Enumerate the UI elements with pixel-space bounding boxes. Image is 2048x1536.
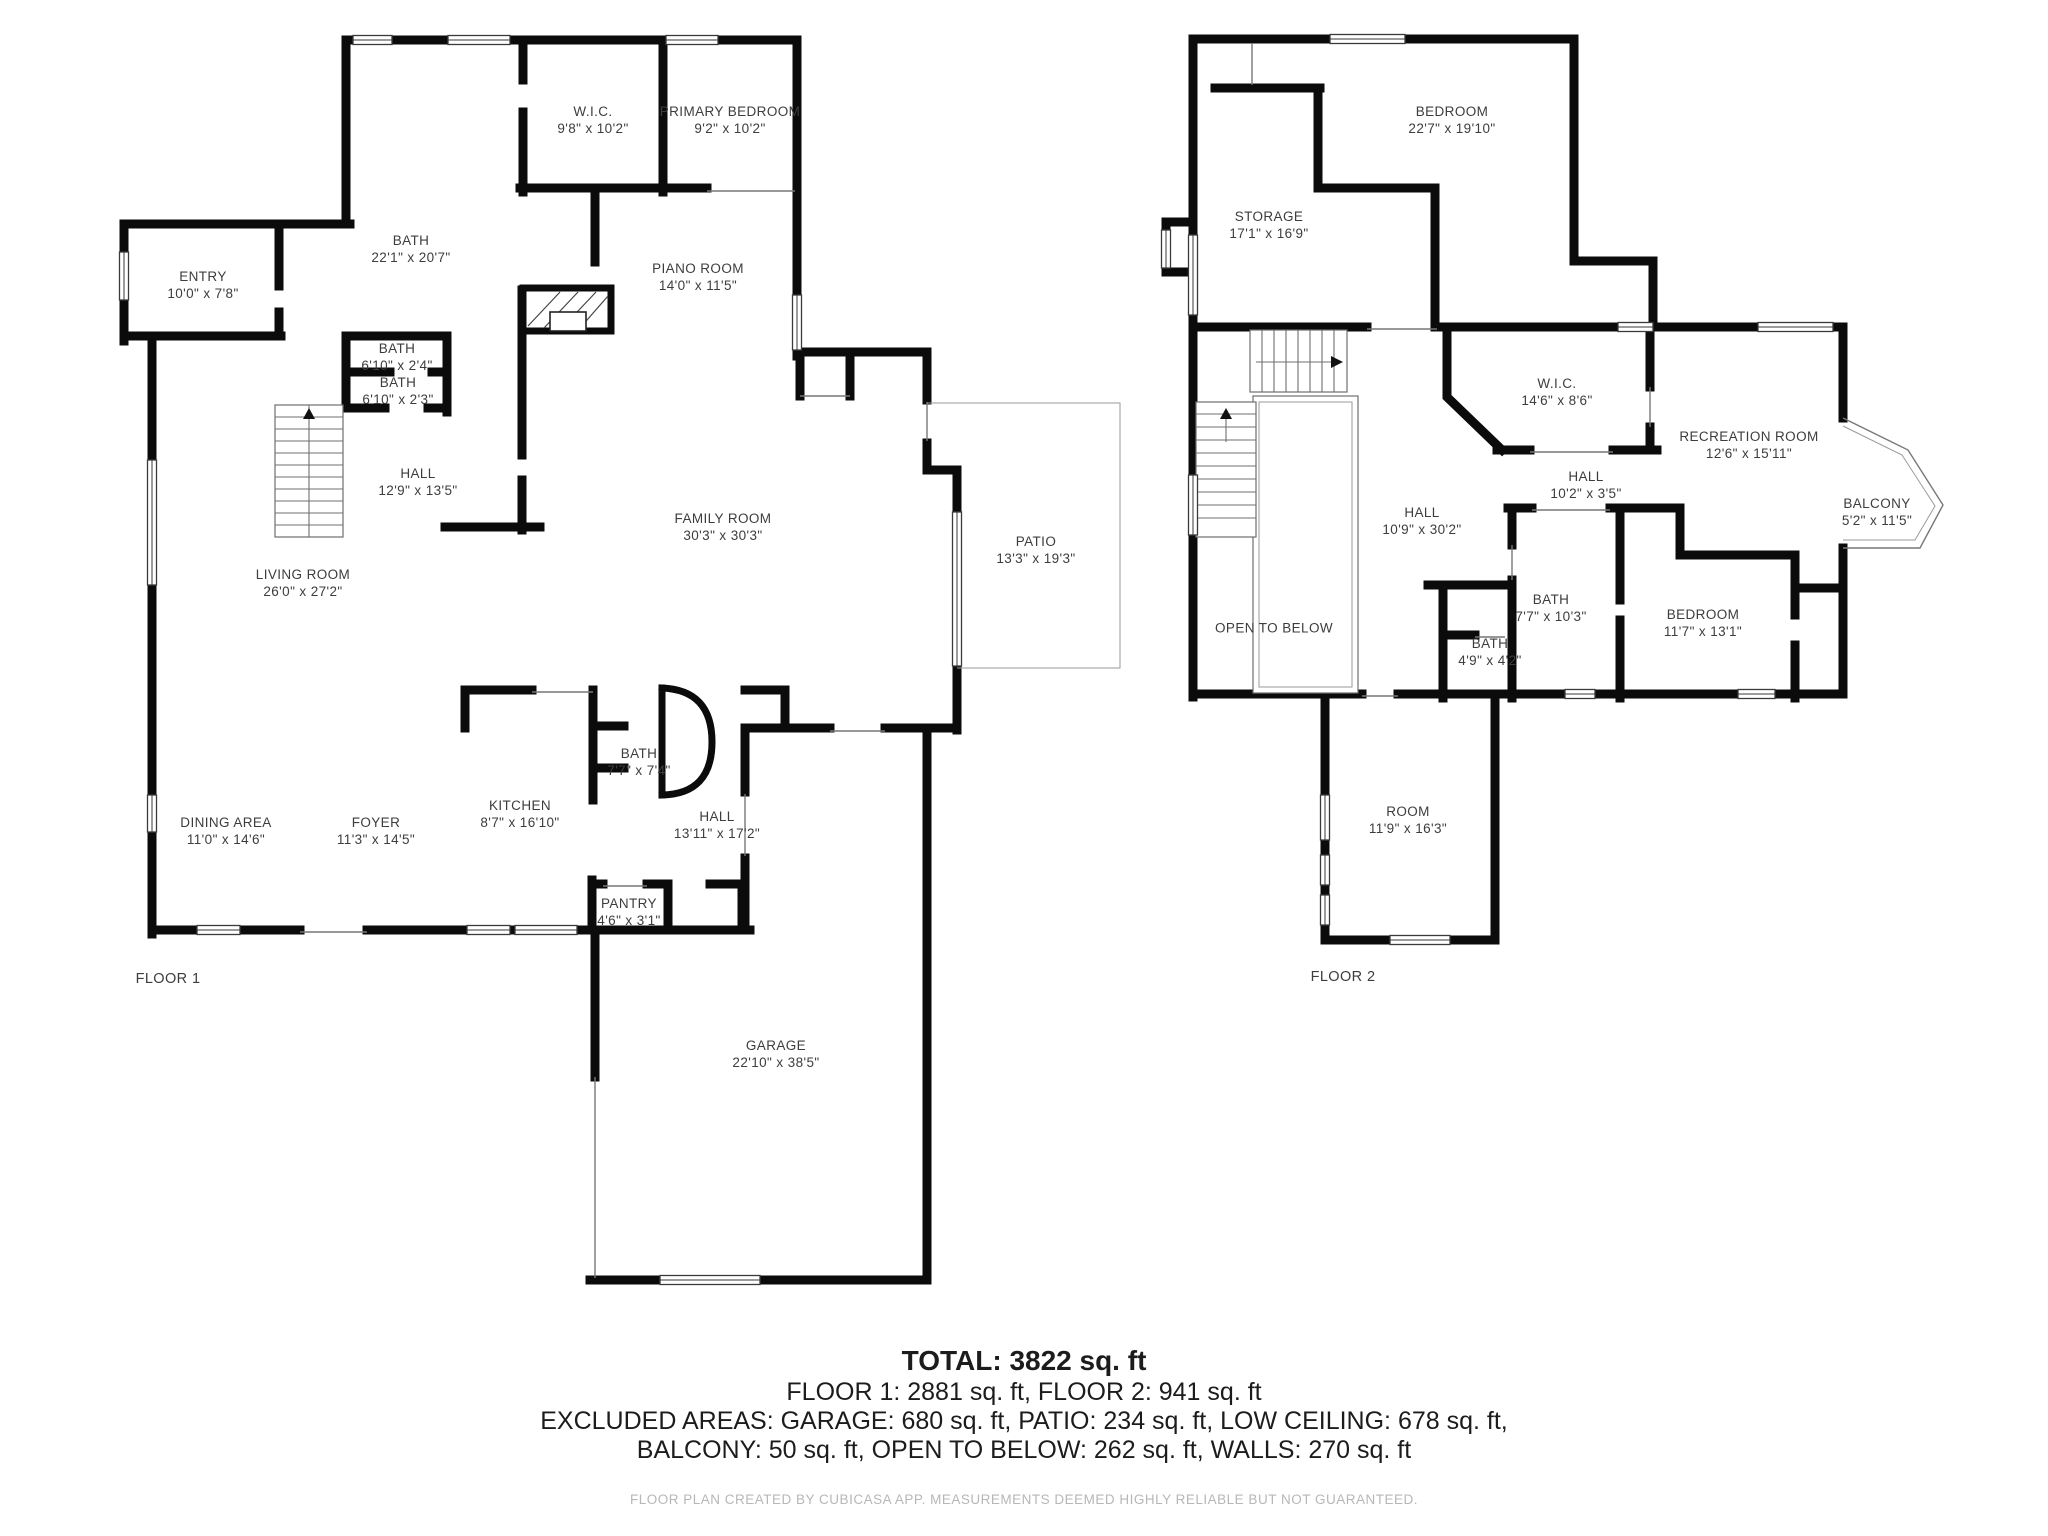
room-name: BEDROOM bbox=[1664, 606, 1742, 623]
room-dims: 17'1" x 16'9" bbox=[1229, 225, 1308, 242]
fireplace bbox=[523, 288, 611, 331]
room-dims: 8'7" x 16'10" bbox=[480, 814, 559, 831]
room-dims: 13'11" x 17'2" bbox=[674, 825, 760, 842]
room-name: BATH bbox=[607, 745, 670, 762]
room-dims: 6'10" x 2'3" bbox=[362, 391, 433, 408]
room-dims: 10'2" x 3'5" bbox=[1550, 485, 1621, 502]
room-label-f1-primary-bedroom: PRIMARY BEDROOM9'2" x 10'2" bbox=[660, 103, 801, 137]
room-name: BATH bbox=[371, 232, 450, 249]
room-name: STORAGE bbox=[1229, 208, 1308, 225]
room-name: GARAGE bbox=[732, 1037, 819, 1054]
room-name: BEDROOM bbox=[1408, 103, 1495, 120]
room-dims: 14'6" x 8'6" bbox=[1521, 392, 1592, 409]
floor1-tag: FLOOR 1 bbox=[136, 971, 201, 987]
room-dims: 22'1" x 20'7" bbox=[371, 249, 450, 266]
room-dims: 4'6" x 3'1" bbox=[597, 912, 660, 929]
room-label-f1-entry: ENTRY10'0" x 7'8" bbox=[167, 268, 238, 302]
room-name: HALL bbox=[1382, 504, 1461, 521]
room-name: BATH bbox=[1458, 635, 1521, 652]
room-label-f1-hall-upper: HALL12'9" x 13'5" bbox=[378, 465, 457, 499]
excluded-areas-line2: BALCONY: 50 sq. ft, OPEN TO BELOW: 262 s… bbox=[0, 1436, 2048, 1465]
disclaimer-footer: FLOOR PLAN CREATED BY CUBICASA APP. MEAS… bbox=[0, 1492, 2048, 1507]
floorplan-page: { "floor1": { "label": "FLOOR 1", "rooms… bbox=[0, 0, 2048, 1536]
room-label-f2-open-to-below: OPEN TO BELOW bbox=[1215, 620, 1333, 637]
room-name: ROOM bbox=[1369, 803, 1447, 820]
room-name: FOYER bbox=[337, 814, 415, 831]
room-label-f2-hall-long: HALL10'9" x 30'2" bbox=[1382, 504, 1461, 538]
room-name: BATH bbox=[1515, 591, 1586, 608]
excluded-areas-line1: EXCLUDED AREAS: GARAGE: 680 sq. ft, PATI… bbox=[0, 1407, 2048, 1436]
room-dims: 12'6" x 15'11" bbox=[1679, 445, 1818, 462]
room-label-f1-kitchen: KITCHEN8'7" x 16'10" bbox=[480, 797, 559, 831]
room-label-f2-bedroom-large: BEDROOM22'7" x 19'10" bbox=[1408, 103, 1495, 137]
room-dims: 11'9" x 16'3" bbox=[1369, 820, 1447, 837]
floor1-staircase bbox=[275, 405, 343, 537]
room-dims: 10'9" x 30'2" bbox=[1382, 521, 1461, 538]
room-name: W.I.C. bbox=[1521, 375, 1592, 392]
room-label-f1-piano-room: PIANO ROOM14'0" x 11'5" bbox=[652, 260, 744, 294]
room-dims: 6'10" x 2'4" bbox=[361, 357, 432, 374]
room-label-f1-living-room: LIVING ROOM26'0" x 27'2" bbox=[256, 566, 350, 600]
room-dims: 4'9" x 4'2" bbox=[1458, 652, 1521, 669]
room-name: HALL bbox=[674, 808, 760, 825]
floorplan-canvas bbox=[0, 0, 2048, 1536]
room-label-f2-storage: STORAGE17'1" x 16'9" bbox=[1229, 208, 1308, 242]
room-label-f1-bath-main: BATH22'1" x 20'7" bbox=[371, 232, 450, 266]
room-dims: 30'3" x 30'3" bbox=[675, 527, 772, 544]
room-dims: 9'8" x 10'2" bbox=[557, 120, 628, 137]
room-dims: 26'0" x 27'2" bbox=[256, 583, 350, 600]
room-label-f2-wic: W.I.C.14'6" x 8'6" bbox=[1521, 375, 1592, 409]
room-label-f1-bath-kitchen: BATH7'7" x 7'4" bbox=[607, 745, 670, 779]
room-dims: 5'2" x 11'5" bbox=[1842, 512, 1912, 529]
room-name: HALL bbox=[1550, 468, 1621, 485]
room-label-f2-bath-large: BATH7'7" x 10'3" bbox=[1515, 591, 1586, 625]
room-dims: 11'7" x 13'1" bbox=[1664, 623, 1742, 640]
area-summary: TOTAL: 3822 sq. ft FLOOR 1: 2881 sq. ft,… bbox=[0, 1344, 2048, 1465]
room-label-f2-bedroom-small: BEDROOM11'7" x 13'1" bbox=[1664, 606, 1742, 640]
room-name: W.I.C. bbox=[557, 103, 628, 120]
room-name: ENTRY bbox=[167, 268, 238, 285]
room-name: LIVING ROOM bbox=[256, 566, 350, 583]
floor2-staircase-upper bbox=[1250, 330, 1347, 392]
room-label-f1-family-room: FAMILY ROOM30'3" x 30'3" bbox=[675, 510, 772, 544]
total-area: TOTAL: 3822 sq. ft bbox=[0, 1344, 2048, 1378]
room-name: PATIO bbox=[996, 533, 1075, 550]
room-name: BATH bbox=[362, 374, 433, 391]
floor2-tag: FLOOR 2 bbox=[1311, 969, 1376, 985]
open-to-below-outline bbox=[1253, 396, 1358, 693]
room-dims: 10'0" x 7'8" bbox=[167, 285, 238, 302]
room-dims: 22'10" x 38'5" bbox=[732, 1054, 819, 1071]
room-label-f2-room: ROOM11'9" x 16'3" bbox=[1369, 803, 1447, 837]
room-name: HALL bbox=[378, 465, 457, 482]
floor1-walls bbox=[124, 40, 957, 1280]
room-dims: 14'0" x 11'5" bbox=[652, 277, 744, 294]
room-dims: 7'7" x 10'3" bbox=[1515, 608, 1586, 625]
room-dims: 13'3" x 19'3" bbox=[996, 550, 1075, 567]
room-name: PRIMARY BEDROOM bbox=[660, 103, 801, 120]
room-label-f2-recreation-room: RECREATION ROOM12'6" x 15'11" bbox=[1679, 428, 1818, 462]
room-label-f2-balcony: BALCONY5'2" x 11'5" bbox=[1842, 495, 1912, 529]
room-name: RECREATION ROOM bbox=[1679, 428, 1818, 445]
room-dims: 7'7" x 7'4" bbox=[607, 762, 670, 779]
room-dims: 12'9" x 13'5" bbox=[378, 482, 457, 499]
room-name: BALCONY bbox=[1842, 495, 1912, 512]
room-label-f2-hall-small: HALL10'2" x 3'5" bbox=[1550, 468, 1621, 502]
room-dims: 11'3" x 14'5" bbox=[337, 831, 415, 848]
room-name: KITCHEN bbox=[480, 797, 559, 814]
room-name: OPEN TO BELOW bbox=[1215, 620, 1333, 637]
room-label-f2-bath-small: BATH4'9" x 4'2" bbox=[1458, 635, 1521, 669]
room-label-f1-bath-small-2: BATH6'10" x 2'3" bbox=[362, 374, 433, 408]
room-name: BATH bbox=[361, 340, 432, 357]
room-name: FAMILY ROOM bbox=[675, 510, 772, 527]
room-label-f1-dining-area: DINING AREA11'0" x 14'6" bbox=[180, 814, 271, 848]
floor-areas: FLOOR 1: 2881 sq. ft, FLOOR 2: 941 sq. f… bbox=[0, 1378, 2048, 1407]
room-label-f1-foyer: FOYER11'3" x 14'5" bbox=[337, 814, 415, 848]
room-name: PANTRY bbox=[597, 895, 660, 912]
floor1-plan bbox=[120, 36, 1121, 1285]
room-dims: 11'0" x 14'6" bbox=[180, 831, 271, 848]
room-label-f1-hall-lower: HALL13'11" x 17'2" bbox=[674, 808, 760, 842]
floor2-staircase-lower bbox=[1196, 402, 1256, 537]
room-name: PIANO ROOM bbox=[652, 260, 744, 277]
room-label-f1-patio: PATIO13'3" x 19'3" bbox=[996, 533, 1075, 567]
room-label-f1-garage: GARAGE22'10" x 38'5" bbox=[732, 1037, 819, 1071]
room-dims: 9'2" x 10'2" bbox=[660, 120, 801, 137]
room-label-f1-wic: W.I.C.9'8" x 10'2" bbox=[557, 103, 628, 137]
room-label-f1-bath-small-1: BATH6'10" x 2'4" bbox=[361, 340, 432, 374]
room-dims: 22'7" x 19'10" bbox=[1408, 120, 1495, 137]
room-name: DINING AREA bbox=[180, 814, 271, 831]
room-label-f1-pantry: PANTRY4'6" x 3'1" bbox=[597, 895, 660, 929]
